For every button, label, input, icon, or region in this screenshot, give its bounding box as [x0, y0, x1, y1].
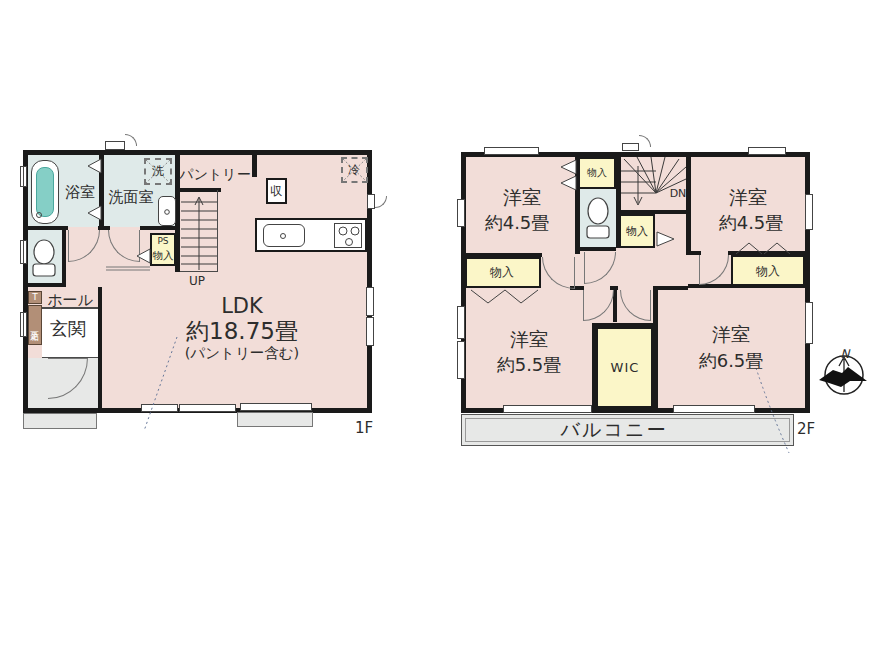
ldk-note-label: (パントリー含む)	[185, 346, 300, 361]
window	[240, 403, 312, 411]
stair-edge-line	[180, 271, 218, 272]
room-ne-name: 洋室	[729, 188, 767, 207]
closet-east-label: 物入	[756, 265, 780, 277]
window	[457, 341, 465, 379]
ps-label: PS	[157, 237, 168, 246]
wall-segment	[28, 283, 66, 287]
wall-segment	[728, 251, 810, 255]
wall-segment	[621, 210, 691, 214]
door-leaf	[139, 230, 140, 262]
window	[503, 405, 592, 413]
storage-label: 収	[270, 185, 282, 197]
wall-segment	[580, 247, 616, 251]
washroom-label: 洗面室	[109, 190, 154, 205]
hall-label: ホール	[47, 293, 93, 308]
room-ne-size: 約4.5畳	[719, 214, 784, 232]
wall-segment	[98, 287, 102, 410]
room-se-name: 洋室	[712, 325, 750, 344]
window	[179, 404, 236, 412]
wic-label: WIC	[611, 361, 640, 374]
shoe-t-label: T	[32, 293, 38, 302]
room-sw-size: 約5.5畳	[497, 356, 562, 374]
window	[805, 194, 813, 230]
closet-mid-label: 物入	[626, 226, 648, 237]
window	[457, 306, 465, 339]
closet-top-label: 物入	[587, 168, 607, 178]
window	[20, 166, 27, 187]
kitchen-sink	[263, 224, 305, 247]
shoe-cabinet-box	[28, 305, 42, 345]
stove	[334, 223, 362, 248]
wall-segment	[140, 226, 178, 230]
wall-segment	[592, 323, 658, 327]
terrace-step	[237, 412, 313, 427]
door-leaf	[583, 290, 584, 321]
wall-segment	[616, 157, 621, 248]
pantry-label: パントリー	[179, 167, 250, 181]
floorplan-canvas: 浴室 洗面室 洗 パントリー 収 冷 PS 物入 UP LDK 約18.75畳 …	[0, 0, 876, 669]
window	[457, 199, 465, 227]
compass-icon	[819, 356, 867, 394]
window	[748, 147, 786, 155]
side-door	[367, 194, 375, 209]
door-leaf	[699, 255, 700, 285]
door-arc	[639, 135, 651, 147]
room-sw-name: 洋室	[510, 330, 548, 349]
door-bump	[105, 141, 125, 150]
room-se-size: 約6.5畳	[699, 352, 764, 370]
wall-segment	[653, 286, 658, 408]
window	[366, 317, 374, 346]
toilet-room-2f	[580, 189, 616, 247]
door-bump	[622, 143, 639, 151]
wall-segment	[252, 150, 257, 177]
ps-closet-label: 物入	[153, 250, 174, 261]
bathtub-water	[36, 167, 54, 217]
floor2-label: 2F	[797, 422, 815, 437]
closet-west-label: 物入	[490, 266, 514, 278]
wall-segment	[175, 188, 221, 192]
door-leaf	[584, 252, 585, 284]
washroom-sink	[158, 196, 176, 226]
wall-segment	[99, 155, 104, 230]
wall-segment	[592, 327, 596, 408]
wall-segment	[575, 157, 580, 254]
door-leaf	[68, 230, 69, 262]
window	[805, 302, 813, 344]
wall-segment	[653, 286, 688, 290]
porch-step	[23, 413, 97, 429]
room-nw-size: 約4.5畳	[485, 214, 550, 232]
door-leaf	[650, 290, 651, 321]
window	[673, 405, 755, 413]
wall-segment	[466, 253, 542, 257]
door-leaf	[574, 257, 575, 289]
room-nw-name: 洋室	[503, 188, 541, 207]
window	[141, 404, 178, 412]
ldk-size-label: 約18.75畳	[186, 320, 298, 343]
door-leaf	[48, 358, 88, 359]
door-arc	[375, 196, 387, 208]
window	[20, 312, 27, 337]
window	[366, 287, 374, 316]
ldk-label: LDK	[221, 296, 263, 317]
wall-segment	[688, 284, 810, 288]
window	[484, 147, 539, 155]
balcony-label: バルコニー	[561, 420, 668, 439]
stairs-up-label: UP	[189, 275, 205, 287]
stair-edge-line	[217, 190, 218, 272]
wall-segment	[686, 157, 691, 255]
entrance-label: 玄関	[50, 320, 86, 338]
laundry-label: 洗	[152, 165, 164, 177]
door-arc	[125, 134, 137, 146]
fridge-label: 冷	[348, 164, 360, 176]
compass-north-label: N	[841, 348, 850, 360]
window	[20, 240, 27, 264]
stairs-down-label: DN	[670, 188, 687, 199]
bath-label: 浴室	[65, 185, 95, 200]
toilet-room-1f	[28, 230, 62, 283]
wall-segment	[62, 230, 66, 287]
floor1-label: 1F	[355, 421, 373, 436]
